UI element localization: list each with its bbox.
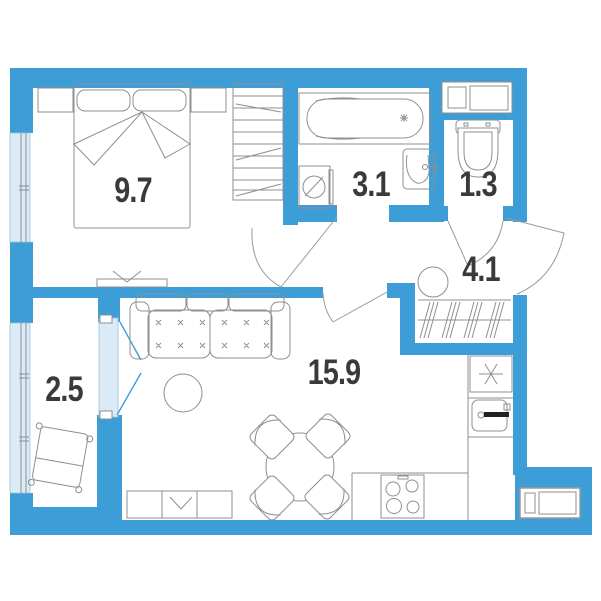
wc-sink-cabinet	[442, 82, 512, 113]
kitchen-sink	[472, 400, 510, 431]
dining-chair-nw	[247, 412, 296, 461]
coffee-table	[164, 374, 202, 412]
bedroom-tv-console	[97, 271, 167, 287]
bathtub	[299, 93, 430, 144]
coat-rack	[418, 300, 511, 338]
dining-chair-se	[302, 472, 351, 521]
floor-plan: 9.7 3.1 1.3 4.1 2.5 15.9	[0, 0, 601, 601]
bedroom-window	[10, 133, 30, 242]
sofa-tufting	[156, 320, 269, 348]
dining-chair-sw	[247, 473, 296, 522]
dining-chair-ne	[303, 411, 352, 460]
washing-machine	[299, 166, 333, 208]
tv-stand	[127, 491, 232, 518]
living-room-door-swing	[323, 292, 387, 322]
sofa	[130, 294, 290, 359]
bathtub-drain	[400, 114, 408, 122]
room-label-balcony: 2.5	[45, 370, 82, 410]
room-label-bedroom: 9.7	[114, 171, 151, 211]
room-label-hallway: 4.1	[462, 250, 499, 290]
pillow-left	[77, 90, 130, 111]
room-label-living-kitchen: 15.9	[308, 353, 361, 393]
balcony-door-swing	[117, 322, 141, 415]
pillow-right	[133, 90, 186, 111]
walls	[10, 68, 592, 535]
room-label-wc: 1.3	[459, 165, 496, 205]
balcony-glazed-partition	[99, 315, 118, 419]
room-label-bathroom: 3.1	[352, 165, 389, 205]
faucet	[484, 412, 509, 417]
fridge	[470, 356, 512, 392]
balcony-chair	[26, 422, 94, 494]
entrance-door-swing	[506, 218, 564, 294]
hall-pouf	[418, 267, 448, 297]
nightstand-left	[38, 88, 73, 112]
nightstand-right	[191, 88, 226, 112]
blanket-fold-left	[74, 112, 142, 165]
wardrobe	[233, 84, 283, 200]
floor-plan-drawing	[0, 0, 601, 601]
exterior-vent-box	[520, 488, 580, 518]
bathroom-door-swing	[252, 217, 337, 287]
blanket-fold-right	[142, 112, 190, 158]
stove	[381, 475, 424, 518]
balcony-window	[10, 323, 30, 493]
